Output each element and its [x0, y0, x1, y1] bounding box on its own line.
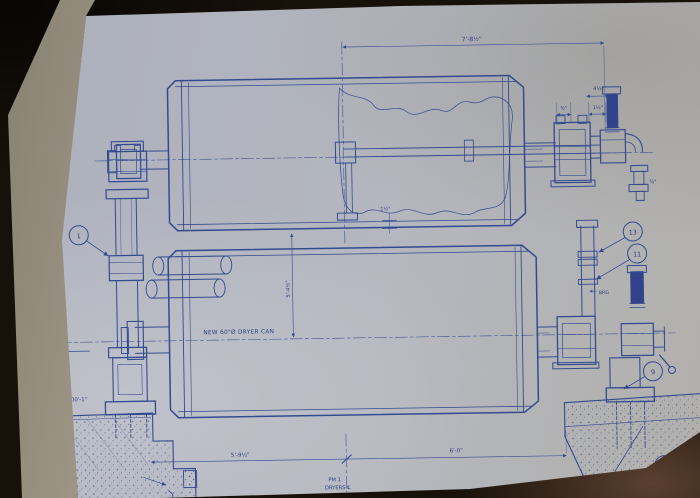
top-right-bearing [524, 115, 595, 187]
callout-9-label: 9 [651, 368, 655, 376]
callout-11-lower-circle [655, 455, 674, 474]
dim-half: ½" [560, 105, 567, 112]
dim-bottom-right-span: 6'-0" [450, 448, 464, 454]
bottom-right-shaft [537, 327, 557, 357]
dim-one-and-half: 1½" [593, 104, 603, 111]
top-left-journal [107, 144, 169, 179]
blueprint-paper: 7'-8½" 4½" ½" 1½" 1½" ⅝" 5'-4½" 5'-9½" 6… [0, 0, 700, 498]
steam-piping-top-right [589, 86, 648, 201]
brg-label: BRG [599, 290, 610, 296]
concrete-pier-right [564, 393, 700, 494]
dim-rod-step: 1½" [380, 205, 390, 212]
pm-centerline-note-2: DRYERS ℄ [325, 485, 351, 491]
pm-centerline-note-1: PM 1 [328, 477, 341, 483]
riser-pipe [607, 94, 619, 128]
callout-11-lower-label: 11 [660, 462, 668, 470]
callout-11-upper-label: 11 [633, 250, 641, 258]
bottom-dryer-can [120, 245, 559, 419]
callout-13-label: 13 [629, 228, 637, 236]
top-dryer-can [106, 73, 648, 237]
dim-bottom-left-span: 5'-9½" [231, 452, 250, 459]
section-cloud [338, 85, 514, 216]
dim-pipe-offset: 4½" [593, 85, 604, 92]
dim-top-span: 7'-8½" [462, 36, 482, 43]
callout-1-label: 1 [77, 232, 81, 240]
corner-note-line1: TER [3, 472, 14, 478]
valve-riser [630, 271, 644, 303]
blueprint-photo: 7'-8½" 4½" ½" 1½" 1½" ⅝" 5'-4½" 5'-9½" 6… [0, 0, 700, 498]
dim-five-eighths: ⅝" [649, 179, 656, 185]
blueprint-drawing: 7'-8½" 4½" ½" 1½" 1½" ⅝" 5'-4½" 5'-9½" 6… [0, 0, 700, 498]
corner-note-line4: ILS [5, 493, 12, 498]
floor-step [183, 470, 196, 487]
dryer-can-note: NEW 60"Ø DRYER CAN [203, 328, 274, 336]
dim-centerline-spacing: 5'-4½" [284, 280, 291, 297]
left-support-column [101, 141, 156, 438]
bottom-left-journal [121, 321, 170, 360]
